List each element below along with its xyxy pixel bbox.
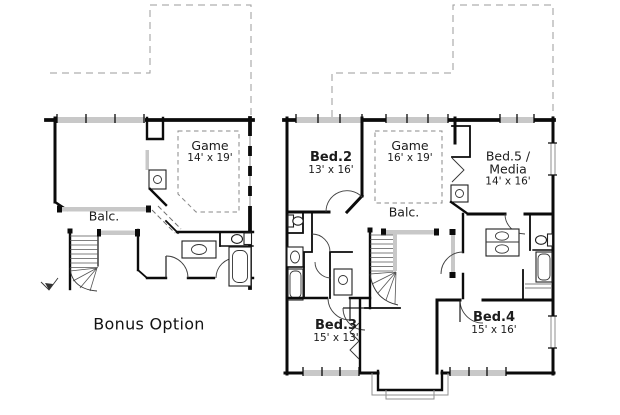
room-name: Balc. bbox=[89, 210, 120, 223]
room-name: Balc. bbox=[389, 206, 420, 219]
room-label-right-balcony: Balc. bbox=[389, 206, 420, 219]
left-roofline bbox=[50, 5, 251, 117]
room-dims: 14' x 19' bbox=[187, 152, 232, 165]
room-dims: 16' x 19' bbox=[387, 152, 432, 165]
room-name: Game bbox=[187, 139, 232, 152]
room-label-bed5-media: Bed.5 / Media 14' x 16' bbox=[485, 150, 530, 189]
room-label-bed4: Bed.4 15' x 16' bbox=[471, 311, 516, 337]
room-name: Game bbox=[387, 139, 432, 152]
room-dims: 15' x 16' bbox=[471, 324, 516, 337]
room-name: Bed.4 bbox=[471, 311, 516, 324]
room-label-right-game: Game 16' x 19' bbox=[387, 139, 432, 165]
right-roofline bbox=[332, 5, 553, 117]
plan-caption-bonus-option: Bonus Option bbox=[93, 318, 204, 331]
room-label-left-game: Game 14' x 19' bbox=[187, 139, 232, 165]
floor-plan-drawing bbox=[0, 0, 620, 415]
room-name: Bed.2 bbox=[308, 151, 353, 164]
room-label-bed2: Bed.2 13' x 16' bbox=[308, 151, 353, 177]
room-label-bed3: Bed.3 15' x 13' bbox=[313, 319, 358, 345]
room-dims: 14' x 16' bbox=[485, 176, 530, 189]
room-label-left-balcony: Balc. bbox=[89, 210, 120, 223]
room-name: Media bbox=[485, 163, 530, 176]
left-bathroom bbox=[166, 221, 253, 286]
floor-plan-canvas: Game 14' x 19' Balc. Bonus Option Bed.2 … bbox=[0, 0, 620, 415]
left-toilet bbox=[244, 233, 252, 245]
right-bath-suite bbox=[441, 214, 553, 300]
left-bath-suite bbox=[287, 212, 352, 300]
room-dims: 13' x 16' bbox=[308, 164, 353, 177]
room-dims: 15' x 13' bbox=[313, 332, 358, 345]
left-stairs bbox=[41, 229, 98, 292]
room-name: Bed.3 bbox=[313, 319, 358, 332]
